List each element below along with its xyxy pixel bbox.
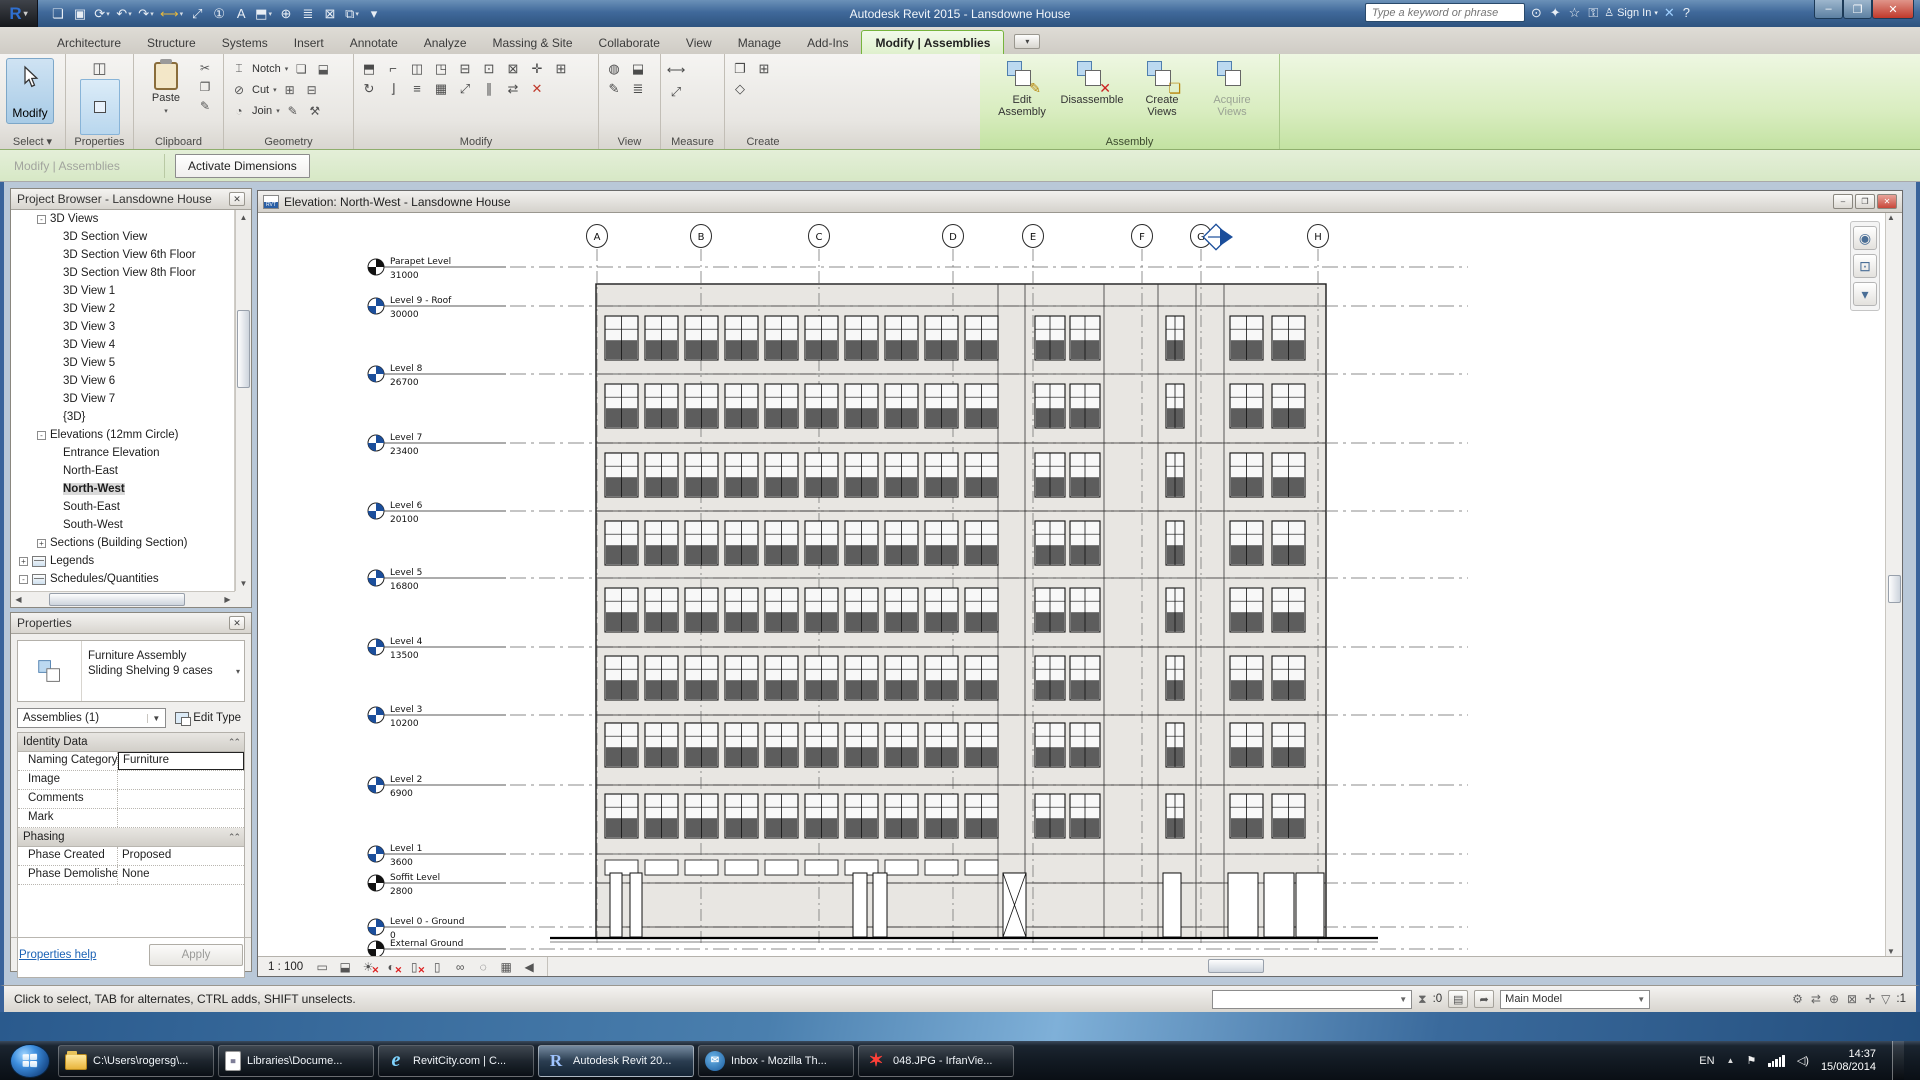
ribbon-tab-row: ArchitectureStructureSystemsInsertAnnota…: [0, 27, 1920, 54]
tree-item-label: 3D View 4: [63, 339, 115, 351]
project-browser-tree: - 3D Views 3D Section View 3D Section Vi…: [11, 210, 235, 591]
svg-text:Level 4: Level 4: [390, 637, 423, 647]
activate-dimensions-button[interactable]: Activate Dimensions: [175, 154, 310, 178]
qat-button[interactable]: ⬒ ▾: [253, 4, 274, 24]
view-control-icon[interactable]: ∞ ✕: [452, 960, 468, 974]
status-right-icon[interactable]: ✛: [1865, 992, 1875, 1006]
identity-data-section[interactable]: Identity Data ⌃⌃: [18, 733, 244, 752]
tree-item-label: Legends: [50, 555, 94, 567]
project-browser-vscrollbar[interactable]: ▲ ▼: [235, 210, 251, 591]
status-right-icon[interactable]: ⊕: [1829, 992, 1839, 1006]
geometry-extra-icon[interactable]: ✎: [284, 103, 302, 119]
modify-tool-icon[interactable]: ≡: [408, 80, 426, 97]
taskbar-app-button[interactable]: R Autodesk Revit 20...: [538, 1045, 694, 1077]
ribbon-tab[interactable]: Add-Ins: [794, 31, 861, 54]
infocenter-icon[interactable]: ⊙: [1531, 5, 1542, 21]
modify-tool-icon[interactable]: ✕: [528, 80, 546, 97]
desktop-background: [0, 1012, 1920, 1041]
properties-palette-button[interactable]: [80, 79, 120, 135]
tree-item[interactable]: 3D View 2: [11, 300, 234, 318]
ribbon-tab[interactable]: Insert: [281, 31, 337, 54]
edit-type-button[interactable]: Edit Type: [171, 710, 245, 726]
qat-button[interactable]: ⊕ ▾: [276, 4, 296, 24]
navigation-icon[interactable]: ◉: [1853, 226, 1877, 250]
qat-icon: ⬒: [255, 6, 267, 22]
project-browser-hscrollbar[interactable]: ◀ ▶: [11, 591, 235, 607]
modify-tool-icon[interactable]: ⬒: [360, 60, 378, 77]
panel-geometry: ⌶ Notch ▾ ❏ ⬓ ⊘ Cut ▾ ⊞ ⊟ ◔ Join ▾: [224, 54, 354, 149]
qat-icon: ①: [213, 6, 225, 22]
view-control-icon[interactable]: ▯ ✕: [406, 960, 422, 974]
scroll-right-icon[interactable]: ▶: [220, 592, 235, 607]
ribbon-tab[interactable]: Collaborate: [586, 31, 673, 54]
svg-text:C: C: [816, 232, 823, 243]
panel-label-assembly[interactable]: Assembly: [980, 136, 1279, 148]
app-icon: ✶: [865, 1051, 887, 1071]
svg-text:31000: 31000: [390, 271, 419, 281]
ribbon-tab[interactable]: Analyze: [411, 31, 480, 54]
panel-label-create[interactable]: Create: [725, 136, 801, 148]
scrollbar-thumb[interactable]: [237, 310, 250, 388]
qat-icon: ⊠: [325, 6, 336, 22]
tree-item[interactable]: + Legends: [11, 552, 234, 570]
window-control-button[interactable]: –: [1814, 0, 1843, 19]
project-browser-title: Project Browser - Lansdowne House: [17, 192, 212, 206]
svg-text:Level 3: Level 3: [390, 705, 422, 715]
tree-item[interactable]: + Sections (Building Section): [11, 534, 234, 552]
tree-item[interactable]: North-East: [11, 462, 234, 480]
panel-select: Modify Select ▾: [0, 54, 66, 149]
ribbon-tab[interactable]: Architecture: [44, 31, 134, 54]
properties-icon[interactable]: ◫: [91, 60, 109, 76]
ribbon-tab[interactable]: Manage: [725, 31, 794, 54]
property-label: Naming Category: [18, 752, 118, 770]
modify-tool-icon[interactable]: ⤢: [456, 80, 474, 97]
properties-header[interactable]: Properties ✕: [11, 613, 251, 634]
view-tool-icon[interactable]: ✎: [605, 80, 623, 97]
properties-help-link[interactable]: Properties help: [19, 949, 96, 961]
design-options-icon[interactable]: ▤: [1448, 990, 1468, 1008]
show-hidden-icons[interactable]: ▲: [1727, 1056, 1735, 1065]
qat-button[interactable]: ▣ ▾: [70, 4, 90, 24]
panel-properties: ◫ Properties: [66, 54, 134, 149]
tree-item[interactable]: South-West: [11, 516, 234, 534]
category-icon: [32, 574, 46, 585]
view-title: Elevation: North-West - Lansdowne House: [284, 195, 511, 209]
drawing-canvas[interactable]: ABCDEFGHParapet Level31000Level 9 - Roof…: [258, 213, 1902, 956]
tree-item[interactable]: - Elevations (12mm Circle): [11, 426, 234, 444]
window-control-button[interactable]: ✕: [1872, 0, 1914, 19]
tree-item[interactable]: 3D View 1: [11, 282, 234, 300]
qat-icon: ⟷: [160, 6, 179, 22]
view-control-icon[interactable]: ◐ ✕: [383, 960, 399, 974]
create-tool-icon[interactable]: ◇: [731, 80, 749, 97]
project-browser-header[interactable]: Project Browser - Lansdowne House ✕: [11, 189, 251, 210]
tree-item-label: Schedules/Quantities: [50, 573, 159, 585]
app-icon: ✉: [705, 1051, 725, 1071]
panel-label-geometry[interactable]: Geometry: [224, 136, 353, 148]
revit-logo-icon: R: [9, 4, 21, 24]
ribbon-tab[interactable]: Systems: [209, 31, 281, 54]
view-control-icon[interactable]: ◀ ✕: [521, 960, 537, 974]
view-control-icon[interactable]: ▦ ✕: [498, 960, 514, 974]
create-tool-icon[interactable]: ⊞: [755, 60, 773, 77]
properties-type-icon: [94, 101, 106, 113]
ribbon-tab[interactable]: View: [673, 31, 725, 54]
svg-text:Parapet Level: Parapet Level: [390, 257, 451, 267]
scroll-down-icon[interactable]: ▼: [236, 576, 251, 591]
qat-button[interactable]: ↷ ▾: [136, 4, 156, 24]
modify-tool-icon[interactable]: ◳: [432, 60, 450, 77]
tree-item[interactable]: {3D}: [11, 408, 234, 426]
edit-type-icon: [175, 712, 189, 724]
panel-create: ❐⊞◇ Create: [725, 54, 801, 149]
taskbar-button-label: Libraries\Docume...: [247, 1055, 342, 1067]
tree-item-label: 3D Section View 6th Floor: [63, 249, 196, 261]
scrollbar-thumb[interactable]: [49, 593, 185, 606]
status-hint: Click to select, TAB for alternates, CTR…: [14, 992, 356, 1006]
infocenter-icon[interactable]: ✦: [1550, 5, 1561, 21]
view-control-icon[interactable]: ◌ ✕: [475, 960, 491, 974]
qat-button[interactable]: ⧉ ▾: [342, 4, 362, 24]
tree-item[interactable]: 3D Section View: [11, 228, 234, 246]
panel-assembly: ✎ Edit Assembly ✕ Disassemble: [980, 54, 1280, 149]
navigation-icon[interactable]: ▾: [1853, 282, 1877, 306]
status-right-icon[interactable]: ⇄: [1811, 992, 1821, 1006]
panel-label-select[interactable]: Select ▾: [0, 135, 65, 148]
tree-item-label: 3D View 6: [63, 375, 115, 387]
tree-item[interactable]: - Schedules/Quantities: [11, 570, 234, 588]
filter-count: :1: [1896, 993, 1906, 1005]
clipboard-tool-icon[interactable]: ❐: [196, 79, 214, 95]
modify-tool-icon[interactable]: ✛: [528, 60, 546, 77]
panel-label-measure[interactable]: Measure: [661, 136, 724, 148]
view-window-button[interactable]: ✕: [1877, 194, 1897, 209]
scroll-left-icon[interactable]: ◀: [11, 592, 26, 607]
modify-tool-button[interactable]: Modify: [6, 58, 54, 124]
infocenter-icon[interactable]: ✕: [1664, 5, 1675, 21]
tree-item[interactable]: 3D View 5: [11, 354, 234, 372]
svg-text:H: H: [1314, 232, 1322, 243]
worksets-icon[interactable]: ⧗: [1418, 992, 1426, 1007]
volume-icon[interactable]: ◁): [1797, 1054, 1809, 1067]
chevron-down-icon: ▾: [1654, 9, 1658, 17]
app-icon: e: [385, 1051, 407, 1071]
geometry-extra-icon[interactable]: ⚒: [306, 103, 324, 119]
panel-label-properties[interactable]: Properties: [66, 136, 133, 148]
view-tool-icon[interactable]: ≣: [629, 80, 647, 97]
qat-button[interactable]: ⊠ ▾: [320, 4, 340, 24]
collapse-icon[interactable]: ⌃⌃: [228, 737, 239, 748]
scrollbar-thumb[interactable]: [1888, 575, 1901, 603]
property-value[interactable]: None: [118, 866, 244, 884]
tree-expander-icon[interactable]: -: [37, 431, 46, 440]
svg-text:2800: 2800: [390, 887, 413, 897]
tree-expander-icon[interactable]: +: [19, 557, 28, 566]
qat-button[interactable]: ⟷ ▾: [158, 4, 185, 24]
options-bar: Modify | Assemblies Activate Dimensions: [0, 149, 1920, 182]
tree-item-label: 3D View 7: [63, 393, 115, 405]
search-input[interactable]: [1365, 3, 1525, 22]
property-label: Image: [18, 771, 118, 789]
geometry-extra-icon[interactable]: ⊞: [281, 82, 299, 98]
infocenter-icon[interactable]: ?: [1683, 5, 1690, 21]
windows-flag-icon: [23, 1053, 39, 1068]
panel-label-clipboard[interactable]: Clipboard: [134, 136, 223, 148]
tree-item[interactable]: Entrance Elevation: [11, 444, 234, 462]
cursor-arrow-icon: [20, 65, 40, 89]
view-tool-icon[interactable]: ◍: [605, 60, 623, 77]
chevron-down-icon: ▾: [268, 10, 272, 18]
taskbar-app-button[interactable]: e RevitCity.com | C...: [378, 1045, 534, 1077]
property-value[interactable]: [118, 790, 244, 808]
taskbar-app-button[interactable]: C:\Users\rogersg\...: [58, 1045, 214, 1077]
properties-panel: Properties ✕ Furniture Assembly Sliding …: [10, 612, 252, 972]
paste-button[interactable]: Paste ▾: [140, 58, 192, 118]
workspace: Project Browser - Lansdowne House ✕ - 3D…: [0, 182, 1920, 985]
svg-text:Level 8: Level 8: [390, 364, 423, 374]
svg-text:A: A: [594, 232, 601, 243]
app-icon: [65, 1054, 87, 1070]
tree-item-label: 3D Views: [50, 213, 98, 225]
taskbar-button-label: Autodesk Revit 20...: [573, 1055, 671, 1067]
tree-item-label: 3D Section View 8th Floor: [63, 267, 196, 279]
assembly-thumbnail-icon: [18, 641, 82, 701]
svg-text:23400: 23400: [390, 447, 419, 457]
tab-modify-assemblies[interactable]: Modify | Assemblies: [861, 30, 1004, 54]
panel-clipboard: Paste ▾ ✂❐✎ Clipboard: [134, 54, 224, 149]
measure-tool-icon[interactable]: ⟷: [667, 61, 685, 78]
modify-tool-icon[interactable]: ⇄: [504, 80, 522, 97]
view-tool-icon[interactable]: ⬓: [629, 60, 647, 77]
collapse-icon[interactable]: ⌃⌃: [228, 832, 239, 843]
tree-item-label: South-West: [63, 519, 123, 531]
svg-text:3600: 3600: [390, 858, 413, 868]
taskbar-app-button[interactable]: ≣ Libraries\Docume...: [218, 1045, 374, 1077]
tree-item[interactable]: - 3D Views: [11, 210, 234, 228]
assembly-button[interactable]: ❏ Create Views: [1130, 59, 1194, 118]
language-indicator[interactable]: EN: [1699, 1055, 1714, 1067]
status-right-icon[interactable]: ⊠: [1847, 992, 1857, 1006]
canvas-vscrollbar[interactable]: ▲ ▼: [1885, 213, 1902, 956]
property-value[interactable]: [118, 809, 244, 827]
chevron-down-icon: ▾: [236, 667, 240, 676]
sign-in-button[interactable]: ♙ Sign In ▾: [1604, 6, 1658, 19]
view-control-icon[interactable]: ▭ ✕: [314, 960, 330, 974]
geometry-tool[interactable]: ⌶ Notch ▾ ❏ ⬓: [230, 59, 347, 78]
chevron-down-icon: ▾: [24, 9, 28, 18]
modify-tool-icon[interactable]: ⊞: [552, 60, 570, 77]
clipboard-tool-icon[interactable]: ✎: [196, 98, 214, 114]
qat-button[interactable]: ▾ ▾: [364, 4, 384, 24]
qat-button[interactable]: ① ▾: [209, 4, 229, 24]
chevron-down-icon: ▾: [276, 107, 280, 115]
panel-label-view[interactable]: View: [599, 136, 660, 148]
tree-item[interactable]: 3D Section View 6th Floor: [11, 246, 234, 264]
modify-tool-icon[interactable]: ◫: [408, 60, 426, 77]
geometry-tool-icon: ⌶: [230, 61, 248, 77]
qat-icon: ⧉: [345, 6, 354, 22]
view-scale-button[interactable]: 1 : 100: [268, 961, 303, 973]
modify-tool-icon[interactable]: ⌐: [384, 60, 402, 77]
main-model-dropdown[interactable]: Main Model ▼: [1500, 990, 1650, 1009]
ribbon-tab[interactable]: Structure: [134, 31, 209, 54]
assembly-button-icon: [1215, 59, 1249, 91]
apply-button[interactable]: Apply: [149, 944, 243, 966]
property-label: Phase Demolished: [18, 866, 118, 884]
navigation-bar: ◉⊡▾: [1850, 221, 1880, 311]
panel-view: ◍⬓✎≣ View: [599, 54, 661, 149]
view-control-bar: 1 : 100 ▭ ✕ ⬓ ✕ ☀ ✕: [258, 956, 1902, 976]
geometry-extra-icon[interactable]: ⊟: [303, 82, 321, 98]
geometry-extra-icon[interactable]: ❏: [292, 61, 310, 77]
tree-item[interactable]: 3D View 4: [11, 336, 234, 354]
qat-button[interactable]: ⤢ ▾: [187, 4, 207, 24]
panel-label-modify[interactable]: Modify: [354, 136, 598, 148]
taskbar-app-button[interactable]: ✶ 048.JPG - IrfanVie...: [858, 1045, 1014, 1077]
scroll-down-icon[interactable]: ▼: [1887, 947, 1895, 956]
close-icon[interactable]: ✕: [229, 616, 245, 630]
property-value[interactable]: Proposed: [118, 847, 244, 865]
filter-icon[interactable]: ▽: [1881, 992, 1890, 1006]
revit-app-menu[interactable]: R ▾: [0, 0, 38, 27]
tree-item-label: 3D View 5: [63, 357, 115, 369]
view-control-icon[interactable]: ⬓ ✕: [337, 960, 353, 974]
scrollbar-thumb[interactable]: [1208, 959, 1264, 973]
tree-item[interactable]: 3D Section View 8th Floor: [11, 264, 234, 282]
modify-tool-icon[interactable]: ⊡: [480, 60, 498, 77]
assembly-button[interactable]: ✎ Edit Assembly: [990, 59, 1054, 118]
tree-expander-icon[interactable]: +: [37, 539, 46, 548]
paste-icon: [154, 62, 178, 90]
tree-expander-icon[interactable]: -: [37, 215, 46, 224]
measure-tool-icon[interactable]: ⤢: [667, 83, 685, 100]
view-title-bar[interactable]: Elevation: North-West - Lansdowne House …: [258, 191, 1902, 213]
svg-text:26700: 26700: [390, 378, 419, 388]
infocenter-icon[interactable]: ⚿: [1588, 5, 1598, 21]
geometry-tool[interactable]: ⊘ Cut ▾ ⊞ ⊟: [230, 80, 347, 99]
divider: [164, 154, 165, 178]
tree-item[interactable]: 3D View 7: [11, 390, 234, 408]
tree-item[interactable]: 3D View 3: [11, 318, 234, 336]
show-desktop-button[interactable]: [1892, 1041, 1904, 1080]
qat-button[interactable]: ⟳ ▾: [92, 4, 112, 24]
tree-item-label: 3D View 3: [63, 321, 115, 333]
qat-icon: ⤢: [192, 6, 202, 22]
app-icon: R: [545, 1051, 567, 1071]
clock[interactable]: 14:37 15/08/2014: [1821, 1048, 1876, 1074]
panel-modify: ⬒⌐◫◳⊟⊡⊠✛⊞↻⌋≡▦⤢∥⇄✕ Modify: [354, 54, 599, 149]
active-only-icon[interactable]: ➦: [1474, 990, 1494, 1008]
property-value[interactable]: Furniture: [118, 752, 244, 770]
type-preview[interactable]: Furniture Assembly Sliding Shelving 9 ca…: [17, 640, 245, 702]
tree-item[interactable]: South-East: [11, 498, 234, 516]
geometry-tool[interactable]: ◔ Join ▾ ✎ ⚒: [230, 101, 347, 120]
options-context-label: Modify | Assemblies: [14, 159, 154, 173]
action-center-icon[interactable]: ⚑: [1746, 1054, 1756, 1067]
window-control-button[interactable]: ❐: [1843, 0, 1872, 19]
tree-item-label: North-East: [63, 465, 118, 477]
create-tool-icon[interactable]: ❐: [731, 60, 749, 77]
tree-item-label: 3D View 2: [63, 303, 115, 315]
qat-icon: ⊕: [281, 6, 292, 22]
tree-item-label: 3D Section View: [63, 231, 147, 243]
modify-tool-icon[interactable]: ⊟: [456, 60, 474, 77]
design-options-dropdown[interactable]: ▼: [1212, 990, 1412, 1009]
view-control-icon[interactable]: ☀ ✕: [360, 960, 376, 974]
ribbon-display-toggle[interactable]: ▾: [1014, 34, 1040, 49]
tree-item[interactable]: 3D View 6: [11, 372, 234, 390]
modify-tool-icon[interactable]: ↻: [360, 80, 378, 97]
project-browser-panel: Project Browser - Lansdowne House ✕ - 3D…: [10, 188, 252, 608]
svg-text:13500: 13500: [390, 651, 419, 661]
network-icon[interactable]: [1768, 1055, 1785, 1067]
disabled-x-icon: ✕: [372, 965, 380, 976]
view-window-button[interactable]: –: [1833, 194, 1853, 209]
modify-tool-icon[interactable]: ∥: [480, 80, 498, 97]
taskbar: C:\Users\rogersg\... ≣ Libraries\Docume.…: [0, 1041, 1920, 1080]
modify-tool-icon[interactable]: ▦: [432, 80, 450, 97]
phasing-section[interactable]: Phasing ⌃⌃: [18, 828, 244, 847]
property-label: Mark: [18, 809, 118, 827]
clipboard-tool-icon[interactable]: ✂: [196, 60, 214, 76]
property-value[interactable]: [118, 771, 244, 789]
geometry-tool-icon: ◔: [230, 103, 248, 119]
assembly-button[interactable]: ✕ Disassemble: [1060, 59, 1124, 118]
svg-text:Level 0 - Ground: Level 0 - Ground: [390, 917, 464, 927]
qat-button[interactable]: ≣ ▾: [298, 4, 318, 24]
scroll-up-icon[interactable]: ▲: [236, 210, 251, 225]
svg-text:Level 1: Level 1: [390, 844, 422, 854]
person-icon: ♙: [1604, 6, 1614, 19]
close-icon[interactable]: ✕: [229, 192, 245, 206]
view-control-icon[interactable]: ▯ ✕: [429, 960, 445, 974]
svg-text:Soffit Level: Soffit Level: [390, 873, 440, 883]
element-selector-dropdown[interactable]: Assemblies (1) ▼: [17, 708, 166, 728]
category-icon: [32, 556, 46, 567]
qat-button[interactable]: ↶ ▾: [114, 4, 134, 24]
ribbon-tab[interactable]: Annotate: [337, 31, 411, 54]
start-button[interactable]: [10, 1044, 50, 1078]
navigation-icon[interactable]: ⊡: [1853, 254, 1877, 278]
assembly-button[interactable]: Acquire Views: [1200, 59, 1264, 118]
chevron-down-icon: ▼: [1637, 995, 1645, 1004]
tree-item[interactable]: North-West: [11, 480, 234, 498]
chevron-down-icon: ▾: [150, 10, 154, 18]
modify-tool-icon[interactable]: ⌋: [384, 80, 402, 97]
tree-expander-icon[interactable]: -: [19, 575, 28, 584]
qat-icon: ▣: [74, 6, 86, 22]
property-label: Comments: [18, 790, 118, 808]
infocenter-icon[interactable]: ☆: [1569, 5, 1581, 21]
canvas-hscrollbar[interactable]: [548, 957, 1902, 976]
qat-button[interactable]: A ▾: [231, 4, 251, 24]
tree-item-label: Elevations (12mm Circle): [50, 429, 178, 441]
svg-text:Level 5: Level 5: [390, 568, 422, 578]
view-window-button[interactable]: ❐: [1855, 194, 1875, 209]
properties-title: Properties: [17, 616, 72, 630]
modify-tool-icon[interactable]: ⊠: [504, 60, 522, 77]
ribbon-tab[interactable]: Massing & Site: [480, 31, 586, 54]
taskbar-app-button[interactable]: ✉ Inbox - Mozilla Th...: [698, 1045, 854, 1077]
tree-item-label: Entrance Elevation: [63, 447, 160, 459]
scroll-up-icon[interactable]: ▲: [1887, 213, 1895, 222]
qat-button[interactable]: ❏ ▾: [48, 4, 68, 24]
chevron-down-icon: ▼: [1399, 995, 1407, 1004]
geometry-extra-icon[interactable]: ⬓: [314, 61, 332, 77]
drawing-window: Elevation: North-West - Lansdowne House …: [257, 190, 1903, 977]
status-right-icon[interactable]: ⚙: [1792, 992, 1803, 1006]
